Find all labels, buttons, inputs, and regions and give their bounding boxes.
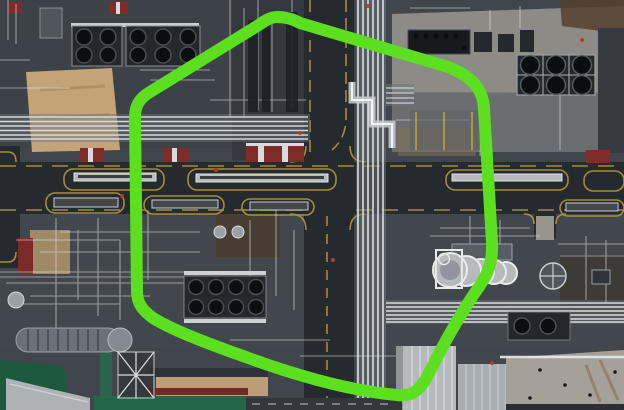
pipe-rack-horizontal-left (0, 114, 310, 142)
kiln-cylinder (16, 328, 132, 352)
concrete-pad-bottom-right (500, 350, 624, 410)
pipe-rack-horizontal-right (386, 300, 624, 324)
yellow-frames (410, 110, 480, 150)
lattice-tower (118, 352, 154, 398)
refinery-aerial-screenshot (0, 0, 624, 410)
bottom-service-road (246, 398, 402, 410)
fan-bank-center (184, 271, 266, 323)
fan-bank-right-edge (508, 312, 570, 340)
aerial-photo-oil-refinery (0, 0, 624, 410)
fan-bank-top-right (517, 55, 595, 95)
fan-bank-top-left (71, 23, 200, 66)
